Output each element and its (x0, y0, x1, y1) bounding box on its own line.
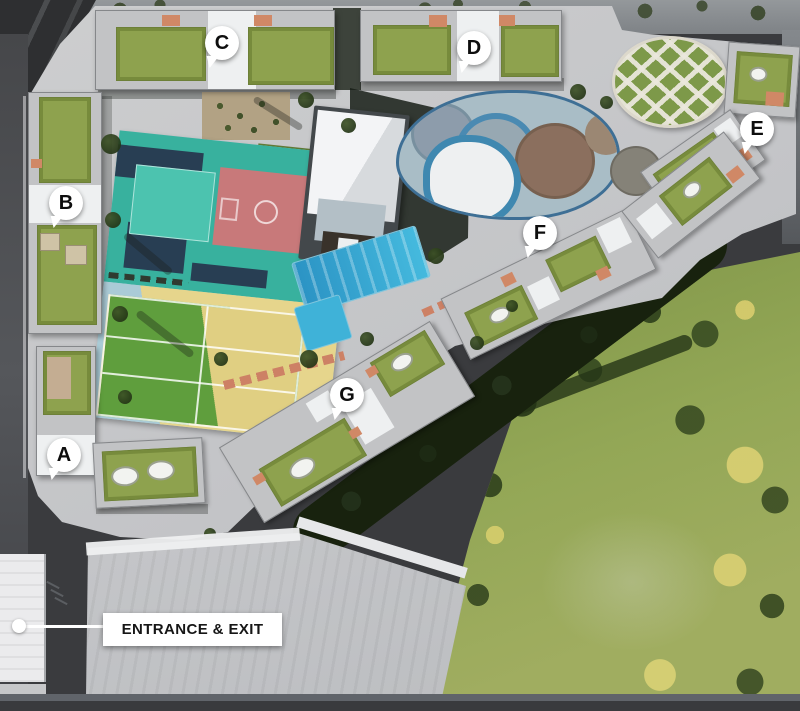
splash-pool (423, 135, 521, 220)
inner-teal-court (129, 164, 216, 242)
building-a-annex (92, 437, 205, 509)
tree (214, 352, 228, 366)
marker-g: G (330, 378, 364, 412)
balcony-mark (54, 597, 67, 605)
marker-e: E (740, 112, 774, 146)
marker-f-letter: F (534, 222, 546, 245)
marker-g-letter: G (339, 384, 355, 407)
bottom-road-dark (0, 701, 800, 711)
tree (105, 212, 121, 228)
tree (341, 118, 356, 133)
balcony-mark (46, 581, 59, 589)
marker-d-letter: D (467, 37, 481, 60)
marker-c-letter: C (215, 32, 229, 55)
patio (65, 245, 87, 265)
tree (428, 248, 444, 264)
roof-block (636, 203, 672, 239)
marker-c: C (205, 26, 239, 60)
roof-garden (373, 25, 451, 75)
patio (40, 233, 60, 251)
shadow-gap-cd (333, 8, 361, 90)
building-e-north (724, 42, 800, 119)
tree (118, 390, 132, 404)
leader-dot (12, 619, 26, 633)
tree (300, 350, 318, 368)
marker-a: A (47, 438, 81, 472)
court-key (219, 197, 239, 221)
roof-garden (248, 27, 334, 85)
patio (254, 15, 272, 26)
site-plan: ENTRANCE & EXIT A B C D E F G (0, 0, 800, 711)
tree (600, 96, 613, 109)
tree (506, 300, 518, 312)
leader-line (25, 625, 104, 628)
tree (112, 306, 128, 322)
patio (162, 15, 180, 26)
court-navy-block (190, 263, 267, 289)
tree (360, 332, 374, 346)
marker-b-letter: B (59, 192, 73, 215)
patio (47, 357, 71, 399)
tree (298, 92, 314, 108)
marker-e-letter: E (750, 118, 763, 141)
patio (765, 91, 784, 106)
roof-garden (39, 97, 91, 183)
side-building (0, 554, 46, 682)
roof-garden (116, 27, 206, 81)
kids-water-playground (396, 90, 620, 220)
tennis-net-line (194, 306, 208, 424)
tree (101, 134, 121, 154)
roof-garden (501, 25, 559, 77)
play-circle-brown (515, 123, 595, 199)
court-center-circle (253, 199, 279, 225)
marker-b: B (49, 186, 83, 220)
balcony-mark (50, 589, 63, 597)
marker-a-letter: A (57, 444, 71, 467)
tree (470, 336, 484, 350)
patio (31, 159, 42, 168)
patio (499, 15, 515, 26)
circular-garden (612, 36, 728, 128)
tree (570, 84, 586, 100)
play-circle-tan (585, 113, 620, 155)
roof-garden (545, 235, 611, 292)
entrance-label: ENTRANCE & EXIT (103, 613, 282, 646)
marker-d: D (457, 31, 491, 65)
marker-f: F (523, 216, 557, 250)
left-curb (23, 96, 26, 478)
patio (429, 15, 447, 27)
patio (500, 272, 517, 288)
